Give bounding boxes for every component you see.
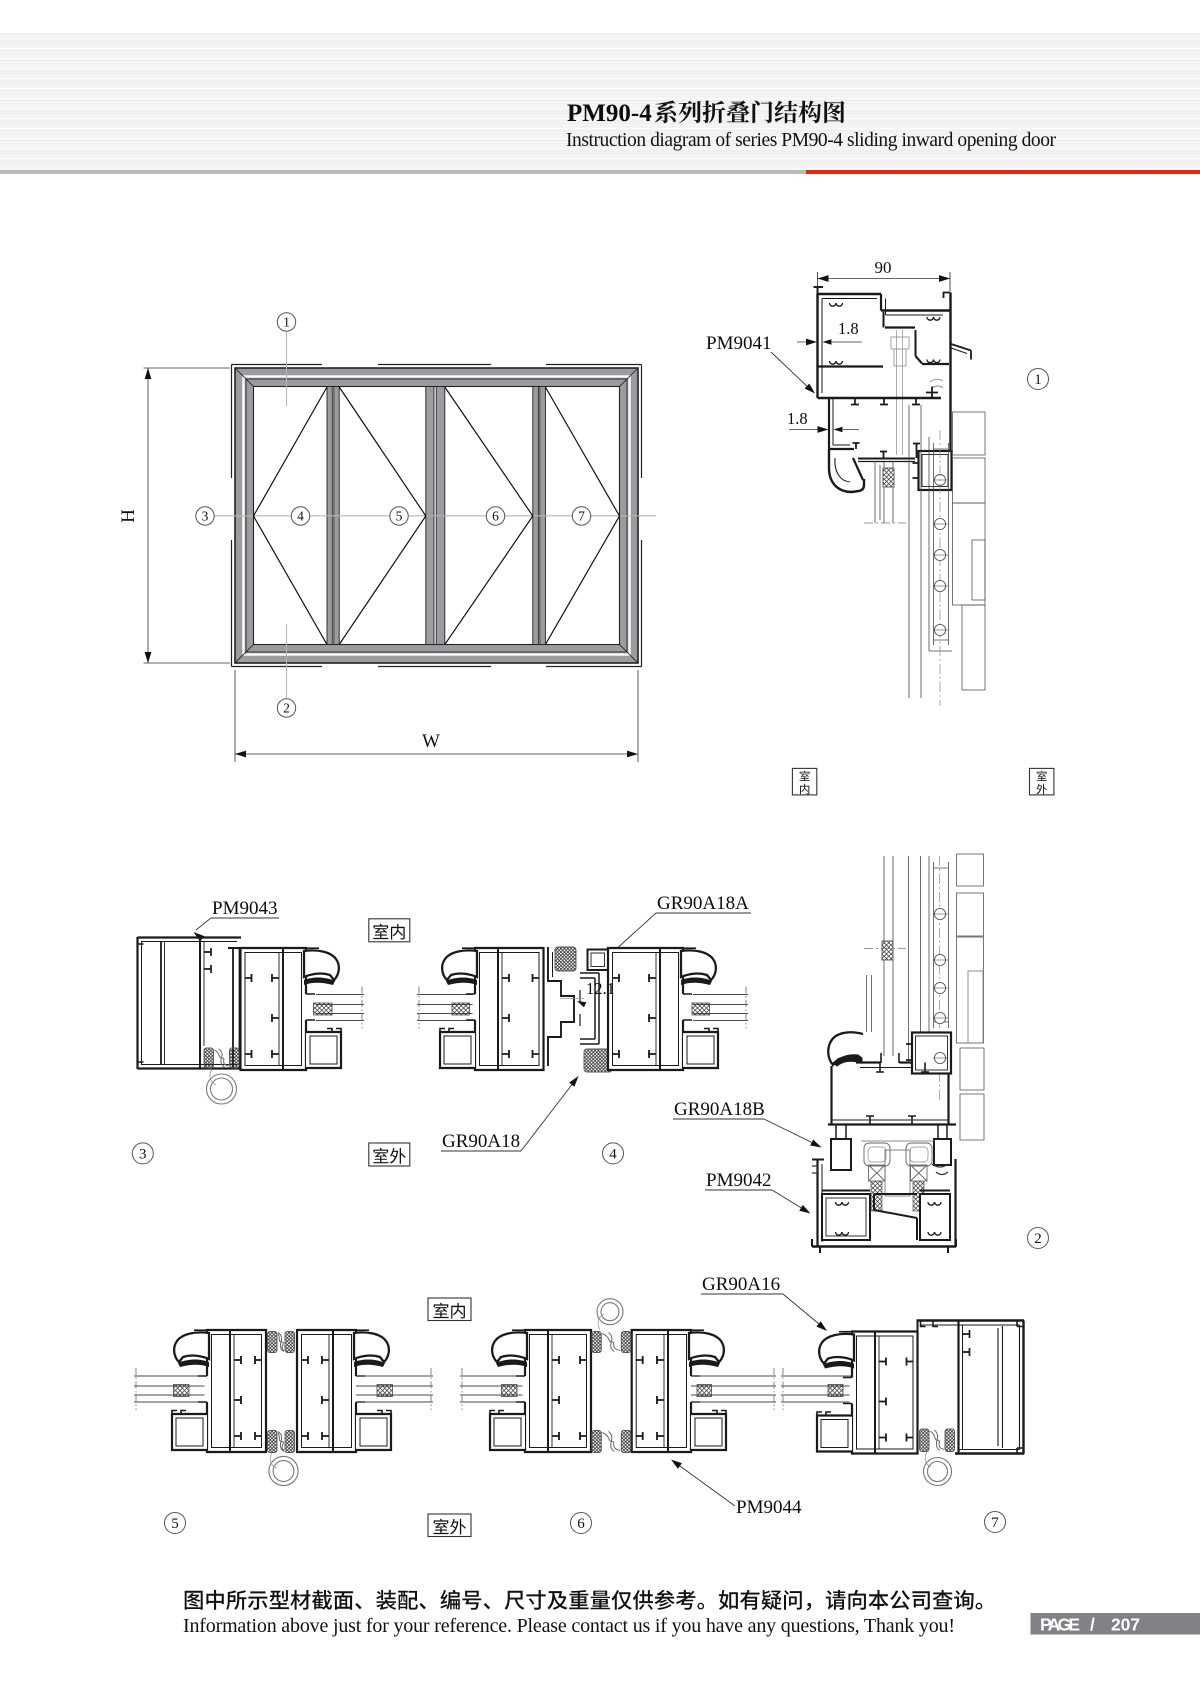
svg-text:Information above just for you: Information above just for your referenc… [183,1615,955,1637]
svg-text:5: 5 [396,509,403,524]
svg-text:W: W [422,731,440,752]
svg-text:PM9043: PM9043 [212,898,277,919]
svg-text:90: 90 [875,258,892,277]
svg-text:2: 2 [1034,1231,1042,1247]
svg-text:7: 7 [578,509,585,524]
svg-text:6: 6 [492,509,499,524]
svg-text:207: 207 [1111,1615,1140,1635]
svg-text:1.8: 1.8 [838,319,859,338]
svg-text:4: 4 [609,1147,617,1163]
svg-text:7: 7 [991,1515,999,1531]
svg-text:2: 2 [283,701,290,716]
svg-text:PM9044: PM9044 [736,1497,802,1518]
svg-text:GR90A16: GR90A16 [702,1274,780,1295]
svg-text:PM90-4: PM90-4 [567,100,652,127]
svg-text:4: 4 [297,509,304,524]
svg-text:H: H [118,509,139,523]
svg-text:PAGE: PAGE [1040,1615,1080,1635]
svg-text:Instruction diagram of series: Instruction diagram of series PM90-4 sli… [566,130,1057,151]
svg-text:12.1: 12.1 [586,979,615,998]
svg-text:6: 6 [577,1516,585,1532]
svg-text:GR90A18B: GR90A18B [674,1099,765,1120]
svg-text:1: 1 [283,315,290,330]
svg-text:PM9041: PM9041 [706,333,771,354]
svg-text:3: 3 [202,509,209,524]
svg-text:3: 3 [139,1147,147,1163]
svg-text:1: 1 [1034,372,1042,388]
svg-text:/: / [1090,1615,1095,1635]
svg-text:5: 5 [171,1516,179,1532]
svg-text:1.8: 1.8 [787,409,808,428]
svg-text:GR90A18: GR90A18 [442,1131,520,1152]
svg-text:PM9042: PM9042 [706,1170,771,1191]
svg-text:GR90A18A: GR90A18A [657,893,749,914]
